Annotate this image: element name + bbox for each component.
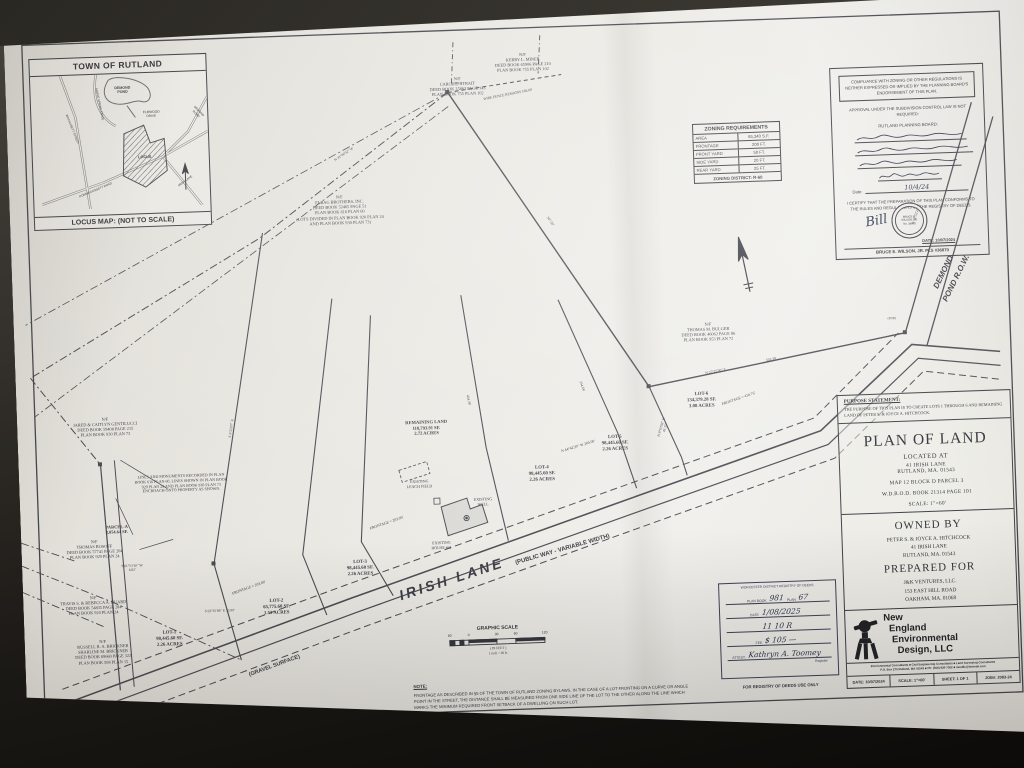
map-label: WIRE FENCE REMAINS 168.00' bbox=[483, 88, 533, 102]
map-label: FRONTAGE = 203.00' bbox=[369, 515, 404, 531]
map-label: REMAINING LAND 118,793.91 SF. 2.72 ACRES bbox=[405, 419, 448, 437]
map-label: N/F JARED & CAITLYN GENTILUCCI DEED BOOK… bbox=[73, 416, 138, 439]
plan-sheet: TOWN OF RUTLAND bbox=[2, 0, 1024, 768]
map-label: DEMOND POND R.O.W. bbox=[926, 246, 974, 304]
map-label: LINES AND MONUMENTS RECORDED IN PLAN BOO… bbox=[135, 472, 228, 494]
map-label: (FND) bbox=[453, 82, 462, 86]
plan-labels: N/F KERRY L. MINER DEED BOOK 65906 PAGE … bbox=[2, 0, 1024, 768]
map-label: FRONTAGE = 203.00' bbox=[232, 580, 267, 596]
map-label: EXISTING HOUSE #41 bbox=[431, 541, 452, 551]
map-label: LOT-5 98,445.60 SF. 2.26 ACRES bbox=[601, 434, 628, 452]
map-label: S 5°22'07" E bbox=[228, 419, 235, 438]
map-label: N/F THOMAS ROSOFF DEED BOOK 57741 PAGE 2… bbox=[66, 538, 123, 561]
map-label: N/F RUSSELL R. A. BRICKNER SHARLINE M. B… bbox=[75, 638, 132, 666]
map-label: N 31°06'52" W bbox=[333, 146, 354, 162]
map-label: 503.39' bbox=[766, 356, 777, 362]
map-label: 334.64' bbox=[578, 380, 586, 391]
map-label: N 57°25'30" E bbox=[705, 367, 726, 375]
map-label: IRISH LANE bbox=[397, 554, 506, 604]
map-label: S 61°53'10" W 4.82' bbox=[121, 563, 143, 572]
map-label: EXISTING WELL bbox=[474, 497, 493, 507]
map-label: 347.50' bbox=[546, 216, 555, 227]
map-label: N 8°03'08" W 43.35' bbox=[657, 417, 671, 439]
map-label: FRONTAGE = 416.76' bbox=[721, 391, 756, 407]
map-label: N/F TRAVIS S. & REBECCA A. HUARD DEED BO… bbox=[60, 594, 127, 617]
map-label: N/F ELBAG BROTHERS, INC. DEED BOOK 52465… bbox=[295, 193, 384, 227]
map-label: (GRAVEL SURFACE) bbox=[248, 654, 301, 679]
map-label: 434.38' bbox=[465, 395, 471, 406]
map-label: N 44°42'20" W 200.00' bbox=[561, 439, 596, 454]
map-label: (FND) bbox=[888, 317, 897, 321]
map-label: (PUBLIC WAY - VARIABLE WIDTH) bbox=[515, 533, 611, 567]
map-label: S 63°35'08" E 35.99' bbox=[205, 608, 235, 613]
map-label: LOT-6 134,379.28 SF. 3.08 ACRES bbox=[687, 391, 717, 409]
map-label: LOT-2 65,775.60 SF. 1.51 ACRES bbox=[263, 598, 290, 616]
photographed-plan: TOWN OF RUTLAND bbox=[0, 0, 1024, 768]
map-label: PARCEL-A 3,054.64 SF. bbox=[105, 524, 128, 535]
map-label: LOT-4 98,445.60 SF. 2.26 ACRES bbox=[528, 465, 555, 483]
map-label: EXISTING LEACH FIELD bbox=[406, 479, 432, 489]
map-label: LOT-1 98,445.60 SF. 2.26 ACRES bbox=[156, 630, 183, 648]
map-label: N/F THOMAS M. BULGER DEED BOOK 46062 PAG… bbox=[681, 321, 735, 343]
map-label: LOT-3 98,445.60 SF. 2.26 ACRES bbox=[347, 559, 374, 577]
map-label: N/F KERRY L. MINER DEED BOOK 65906 PAGE … bbox=[494, 51, 551, 74]
map-label: N 35°52'24" E bbox=[911, 204, 921, 225]
map-label: N/F CAROL E. STRAIT DEED BOOK 25863 PAGE… bbox=[429, 75, 486, 98]
